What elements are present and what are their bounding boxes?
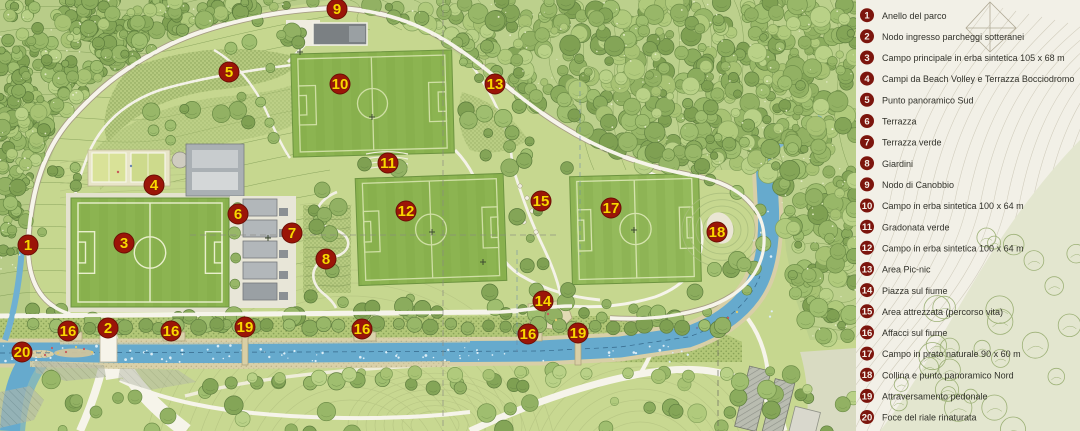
svg-text:10: 10	[862, 201, 873, 212]
svg-text:19: 19	[237, 319, 254, 336]
svg-text:16: 16	[163, 323, 180, 340]
svg-text:Campo in erba sintetica 100 x: Campo in erba sintetica 100 x 64 m	[882, 243, 1024, 253]
svg-text:16: 16	[862, 328, 873, 339]
svg-text:11: 11	[380, 155, 396, 172]
svg-text:12: 12	[862, 243, 873, 254]
svg-text:3: 3	[120, 235, 128, 252]
svg-text:13: 13	[487, 76, 504, 93]
svg-text:5: 5	[225, 64, 233, 81]
svg-text:5: 5	[864, 95, 870, 106]
svg-text:2: 2	[104, 320, 112, 337]
svg-text:9: 9	[333, 1, 341, 18]
svg-text:16: 16	[60, 323, 77, 340]
svg-text:Punto panoramico Sud: Punto panoramico Sud	[882, 95, 974, 105]
svg-text:4: 4	[150, 177, 159, 194]
svg-text:13: 13	[862, 264, 873, 275]
svg-text:Area attrezzata (percorso vita: Area attrezzata (percorso vita)	[882, 307, 1003, 317]
svg-text:15: 15	[533, 193, 550, 210]
svg-text:Anello del parco: Anello del parco	[882, 11, 947, 21]
svg-text:Campo in prato naturale 90 x 6: Campo in prato naturale 90 x 60 m	[882, 349, 1021, 359]
svg-text:Gradonata verde: Gradonata verde	[882, 222, 950, 232]
svg-text:Foce del riale rinaturata: Foce del riale rinaturata	[882, 413, 977, 423]
svg-text:17: 17	[603, 200, 620, 217]
svg-text:8: 8	[864, 159, 869, 170]
svg-text:9: 9	[864, 180, 869, 191]
svg-text:4: 4	[864, 74, 870, 85]
svg-text:Giardini: Giardini	[882, 159, 913, 169]
svg-text:12: 12	[398, 203, 415, 220]
svg-text:Campo principale in erba sinte: Campo principale in erba sintetica 105 x…	[882, 53, 1065, 63]
svg-text:Terrazza: Terrazza	[882, 117, 917, 127]
svg-text:Piazza sul fiume: Piazza sul fiume	[882, 286, 948, 296]
svg-text:7: 7	[864, 138, 869, 149]
svg-text:6: 6	[864, 116, 869, 127]
svg-text:8: 8	[322, 251, 330, 268]
svg-text:16: 16	[354, 321, 371, 338]
svg-text:Attraversamento pedonale: Attraversamento pedonale	[882, 392, 988, 402]
svg-text:2: 2	[864, 32, 869, 43]
svg-text:14: 14	[535, 293, 552, 310]
svg-text:17: 17	[862, 349, 873, 360]
svg-text:Collina e punto panoramico Nor: Collina e punto panoramico Nord	[882, 370, 1014, 380]
svg-text:19: 19	[570, 325, 587, 342]
svg-text:11: 11	[862, 222, 873, 233]
svg-text:Nodo di Canobbio: Nodo di Canobbio	[882, 180, 954, 190]
svg-text:Affacci sul fiume: Affacci sul fiume	[882, 328, 947, 338]
svg-text:20: 20	[14, 344, 31, 361]
svg-text:1: 1	[24, 237, 32, 254]
svg-text:18: 18	[862, 370, 873, 381]
svg-text:Terrazza verde: Terrazza verde	[882, 138, 942, 148]
svg-text:Nodo ingresso parcheggi sotter: Nodo ingresso parcheggi sotteranei	[882, 32, 1024, 42]
svg-text:15: 15	[862, 307, 873, 318]
svg-text:Campi da Beach Volley e Terraz: Campi da Beach Volley e Terrazza Bocciod…	[882, 74, 1074, 84]
svg-text:16: 16	[520, 326, 537, 343]
svg-text:1: 1	[864, 11, 870, 22]
svg-text:18: 18	[709, 224, 726, 241]
svg-text:Campo in erba sintetica 100 x: Campo in erba sintetica 100 x 64 m	[882, 201, 1024, 211]
svg-text:10: 10	[332, 76, 349, 93]
svg-text:14: 14	[862, 286, 873, 297]
svg-text:3: 3	[864, 53, 869, 64]
svg-text:Area Pic-nic: Area Pic-nic	[882, 265, 931, 275]
svg-text:7: 7	[288, 225, 296, 242]
svg-text:20: 20	[862, 412, 873, 423]
svg-text:6: 6	[234, 206, 242, 223]
svg-text:19: 19	[862, 391, 873, 402]
